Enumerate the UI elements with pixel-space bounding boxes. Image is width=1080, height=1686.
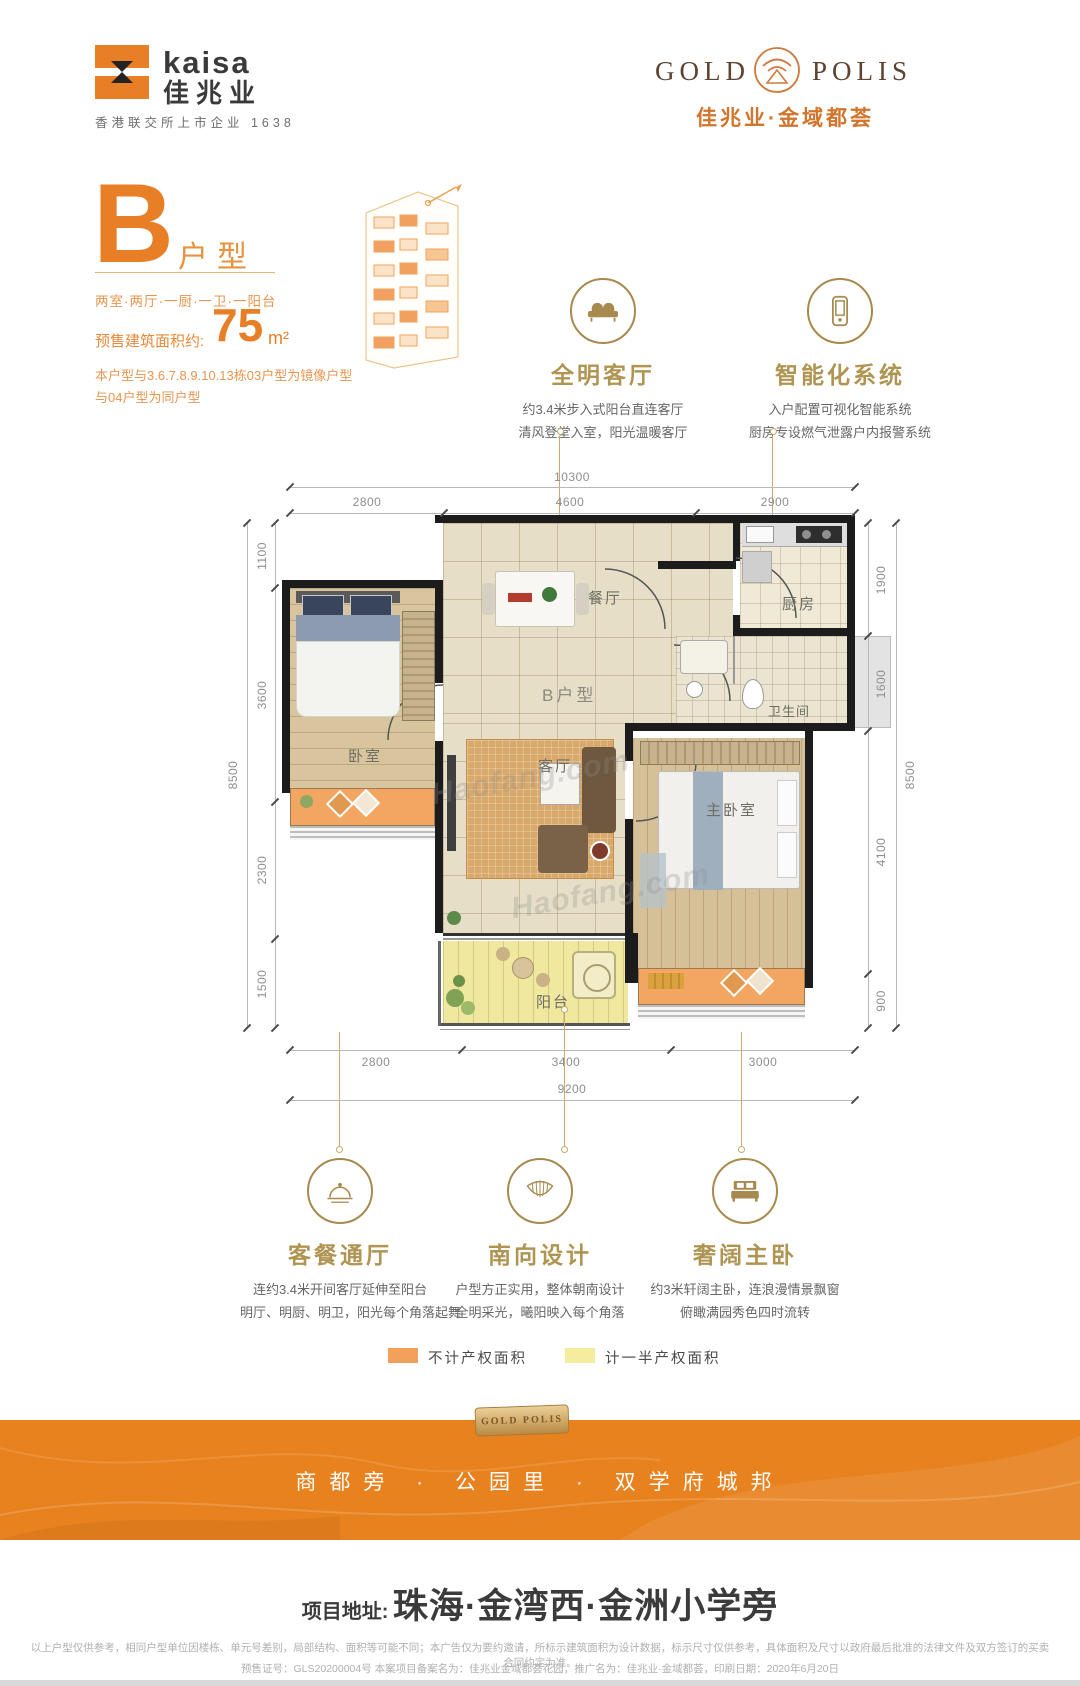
dim-top-total: 10300 xyxy=(554,470,590,484)
kitchen-sink xyxy=(746,526,774,543)
dim-bottom-total: 9200 xyxy=(558,1082,587,1096)
dim-line xyxy=(868,523,869,1028)
dim-line xyxy=(290,487,855,488)
dim-tick xyxy=(851,509,859,517)
address-row: 项目地址: 珠海·金湾西·金洲小学旁 xyxy=(0,1578,1080,1629)
legend-label-no-property: 不计产权面积 xyxy=(428,1347,527,1368)
dim-right-1: 1900 xyxy=(874,566,888,595)
feature-title: 奢阔主卧 xyxy=(645,1236,845,1270)
feature-desc: 户型方正实用，整体朝南设计 全明采光，曦阳映入每个角落 xyxy=(440,1278,640,1325)
dim-left-total: 8500 xyxy=(226,761,240,790)
feature-title: 智能化系统 xyxy=(730,356,950,390)
feature-smart-system: 智能化系统 入户配置可视化智能系统 厨房专设燃气泄露户内报警系统 xyxy=(730,278,950,445)
unit-letter: B xyxy=(93,178,174,270)
kaisa-logo-triangle-top xyxy=(111,61,133,72)
side-table xyxy=(590,841,610,861)
dim-tick xyxy=(892,1024,900,1032)
room-label-dining: 餐厅 xyxy=(588,587,622,608)
balcony-chair xyxy=(536,973,550,987)
cloche-icon xyxy=(307,1158,373,1224)
feature-desc: 入户配置可视化智能系统 厨房专设燃气泄露户内报警系统 xyxy=(730,398,950,445)
feature-desc-line2: 厨房专设燃气泄露户内报警系统 xyxy=(730,421,950,444)
address-label: 项目地址: xyxy=(302,1601,389,1623)
feature-south-facing: 南向设计 户型方正实用，整体朝南设计 全明采光，曦阳映入每个角落 xyxy=(440,1158,640,1325)
dim-left-3: 2300 xyxy=(255,856,269,885)
gold-wordmark: GOLD xyxy=(655,56,750,87)
dim-right-total: 8500 xyxy=(903,761,917,790)
feature-desc-line1: 入户配置可视化智能系统 xyxy=(730,398,950,421)
connector-line xyxy=(564,1012,565,1146)
pillow xyxy=(777,832,797,878)
legend-label-half-property: 计一半产权面积 xyxy=(605,1347,721,1368)
unit-type-suffix: 户型 xyxy=(178,232,256,276)
wall xyxy=(282,781,290,793)
dim-left-4: 1500 xyxy=(255,970,269,999)
brand-band: 商都旁 · 公园里 · 双学府城邦 xyxy=(0,1420,1080,1540)
project-name: 佳兆业·金域都荟 xyxy=(655,102,915,132)
pillow xyxy=(350,595,392,617)
balcony-plant xyxy=(461,1001,475,1015)
feature-desc-line2: 俯瞰满园秀色四时流转 xyxy=(645,1301,845,1324)
unit-note-line2: 与04户型为同户型 xyxy=(95,387,200,409)
sofa-icon xyxy=(570,278,636,344)
badge-text: GOLD POLIS xyxy=(481,1414,563,1428)
dim-tick xyxy=(851,1096,859,1104)
connector-dot xyxy=(561,1006,568,1013)
kaisa-subtitle: 香港联交所上市企业 1638 xyxy=(95,112,295,131)
feature-desc: 约3.4米步入式阳台直连客厅 清风登堂入室，阳光温暖客厅 xyxy=(493,398,713,445)
address-value: 珠海·金湾西·金洲小学旁 xyxy=(393,1587,778,1626)
plan-unit-label: B户型 xyxy=(542,681,596,706)
fridge xyxy=(742,551,772,583)
feature-title: 南向设计 xyxy=(440,1236,640,1270)
bottom-bar xyxy=(0,1680,1080,1686)
washer xyxy=(572,951,616,999)
connector-line xyxy=(339,1032,340,1146)
polis-wordmark: POLIS xyxy=(812,56,912,87)
washer-drum xyxy=(583,964,611,992)
shower-tray xyxy=(680,640,728,674)
feature-master-bedroom: 奢阔主卧 约3米轩阔主卧，连浪漫情景飘窗 俯瞰满园秀色四时流转 xyxy=(645,1158,845,1325)
unit-area-value: 75 xyxy=(212,305,263,346)
dim-tick xyxy=(851,483,859,491)
feature-desc-line1: 户型方正实用，整体朝南设计 xyxy=(440,1278,640,1301)
disclaimer-line2: 预售证号：GLS20200004号 本案项目备案名为：佳兆业金域都荟花园，推广名… xyxy=(30,1661,1050,1676)
dim-line xyxy=(290,1050,855,1051)
connector-dot xyxy=(738,1146,745,1153)
legend-swatch-no-property xyxy=(388,1348,418,1363)
feature-title: 客餐通厅 xyxy=(240,1236,440,1270)
band-slogan: 商都旁 · 公园里 · 双学府城邦 xyxy=(0,1466,1080,1496)
living-plant xyxy=(447,911,461,925)
dim-right-2: 1600 xyxy=(874,670,888,699)
feature-open-living-dining: 客餐通厅 连约3.4米开间客厅延伸至阳台 明厅、明厨、明卫，阳光每个角落起舞 xyxy=(240,1158,440,1325)
dim-line xyxy=(247,523,248,1028)
floor-plan: 餐厅 厨房 卫生间 卧室 客厅 主卧室 阳台 B户型 Haofang.com H… xyxy=(290,523,855,1028)
bed-icon xyxy=(712,1158,778,1224)
connector-line xyxy=(741,1032,742,1146)
dim-top-1: 2800 xyxy=(353,495,382,509)
connector-dot xyxy=(557,428,564,435)
table-plant xyxy=(542,587,557,602)
balcony-plant xyxy=(453,975,465,987)
dim-bottom-2: 3400 xyxy=(552,1055,581,1069)
kaisa-wordmark-cn: 佳兆业 xyxy=(163,80,262,106)
feature-desc-line2: 全明采光，曦阳映入每个角落 xyxy=(440,1301,640,1324)
balcony-table xyxy=(512,957,534,979)
bed-duvet xyxy=(296,641,400,717)
pillow xyxy=(777,780,797,826)
dim-tick xyxy=(271,1024,279,1032)
kaisa-logo-icon xyxy=(95,45,149,99)
dim-top-3: 2900 xyxy=(761,495,790,509)
pillow xyxy=(302,595,344,617)
site-plan-diagram xyxy=(358,183,473,373)
stove xyxy=(796,526,842,543)
dim-left-1: 1100 xyxy=(255,542,269,570)
dim-tick xyxy=(851,1046,859,1054)
connector-dot xyxy=(561,1146,568,1153)
wardrobe xyxy=(402,611,435,721)
dim-bottom-3: 3000 xyxy=(749,1055,778,1069)
dim-right-4: 900 xyxy=(874,990,888,1012)
armchair xyxy=(538,825,588,873)
dim-tick xyxy=(864,1024,872,1032)
feature-desc-line2: 明厅、明厨、明卫，阳光每个角落起舞 xyxy=(240,1301,440,1324)
feature-title: 全明客厅 xyxy=(493,356,713,390)
basin xyxy=(686,681,703,698)
smartphone-icon xyxy=(807,278,873,344)
master-wardrobe xyxy=(640,741,800,765)
connector-dot xyxy=(336,1146,343,1153)
dim-tick xyxy=(243,1024,251,1032)
burner xyxy=(802,530,811,539)
wall xyxy=(282,580,290,788)
unit-note-line1: 本户型与3.6.7.8.9.10.13栋03户型为镜像户型 xyxy=(95,365,352,387)
dining-tray xyxy=(508,593,532,602)
unit-area-unit: m² xyxy=(268,328,289,349)
room-label-kitchen: 厨房 xyxy=(782,593,816,614)
gold-polis-badge: GOLD POLIS xyxy=(475,1404,570,1436)
connector-line xyxy=(772,436,773,522)
unit-area-label: 预售建筑面积约: xyxy=(95,330,204,351)
dining-chair xyxy=(482,583,495,615)
dim-line xyxy=(290,1100,855,1101)
feature-desc-line1: 约3.4米步入式阳台直连客厅 xyxy=(493,398,713,421)
dim-bottom-1: 2800 xyxy=(362,1055,391,1069)
bay-cushion-row xyxy=(648,973,684,989)
feature-desc: 约3米轩阔主卧，连浪漫情景飘窗 俯瞰满园秀色四时流转 xyxy=(645,1278,845,1325)
bath-partition xyxy=(733,636,735,684)
dim-line xyxy=(275,523,276,1028)
kaisa-logo-triangle-bottom xyxy=(111,72,133,83)
feature-desc: 连约3.4米开间客厅延伸至阳台 明厅、明厨、明卫，阳光每个角落起舞 xyxy=(240,1278,440,1325)
dim-line xyxy=(290,513,855,514)
dining-table xyxy=(495,571,575,627)
feature-desc-line1: 连约3.4米开间客厅延伸至阳台 xyxy=(240,1278,440,1301)
room-label-bedroom: 卧室 xyxy=(348,745,382,766)
kaisa-wordmark-en: kaisa xyxy=(163,47,251,78)
room-label-bath: 卫生间 xyxy=(768,701,810,720)
balcony-chair xyxy=(496,947,510,961)
feature-bright-living: 全明客厅 约3.4米步入式阳台直连客厅 清风登堂入室，阳光温暖客厅 xyxy=(493,278,713,445)
awning-icon xyxy=(507,1158,573,1224)
burner xyxy=(822,530,831,539)
dim-top-2: 4600 xyxy=(556,495,585,509)
room-label-master: 主卧室 xyxy=(706,799,757,820)
legend-swatch-half-property xyxy=(565,1348,595,1363)
gold-polis-seal-icon xyxy=(752,45,802,95)
dim-right-3: 4100 xyxy=(874,838,888,867)
dim-line xyxy=(896,523,897,1028)
toilet xyxy=(742,679,764,709)
connector-dot xyxy=(770,428,777,435)
divider-line xyxy=(95,272,275,273)
feature-desc-line2: 清风登堂入室，阳光温暖客厅 xyxy=(493,421,713,444)
bay-plant xyxy=(300,795,313,808)
bed-blanket xyxy=(296,615,400,641)
poster-page: kaisa 佳兆业 香港联交所上市企业 1638 GOLD POLIS 佳兆业·… xyxy=(0,0,1080,1686)
feature-desc-line1: 约3米轩阔主卧，连浪漫情景飘窗 xyxy=(645,1278,845,1301)
wall xyxy=(435,515,855,523)
dim-left-2: 3600 xyxy=(255,681,269,710)
